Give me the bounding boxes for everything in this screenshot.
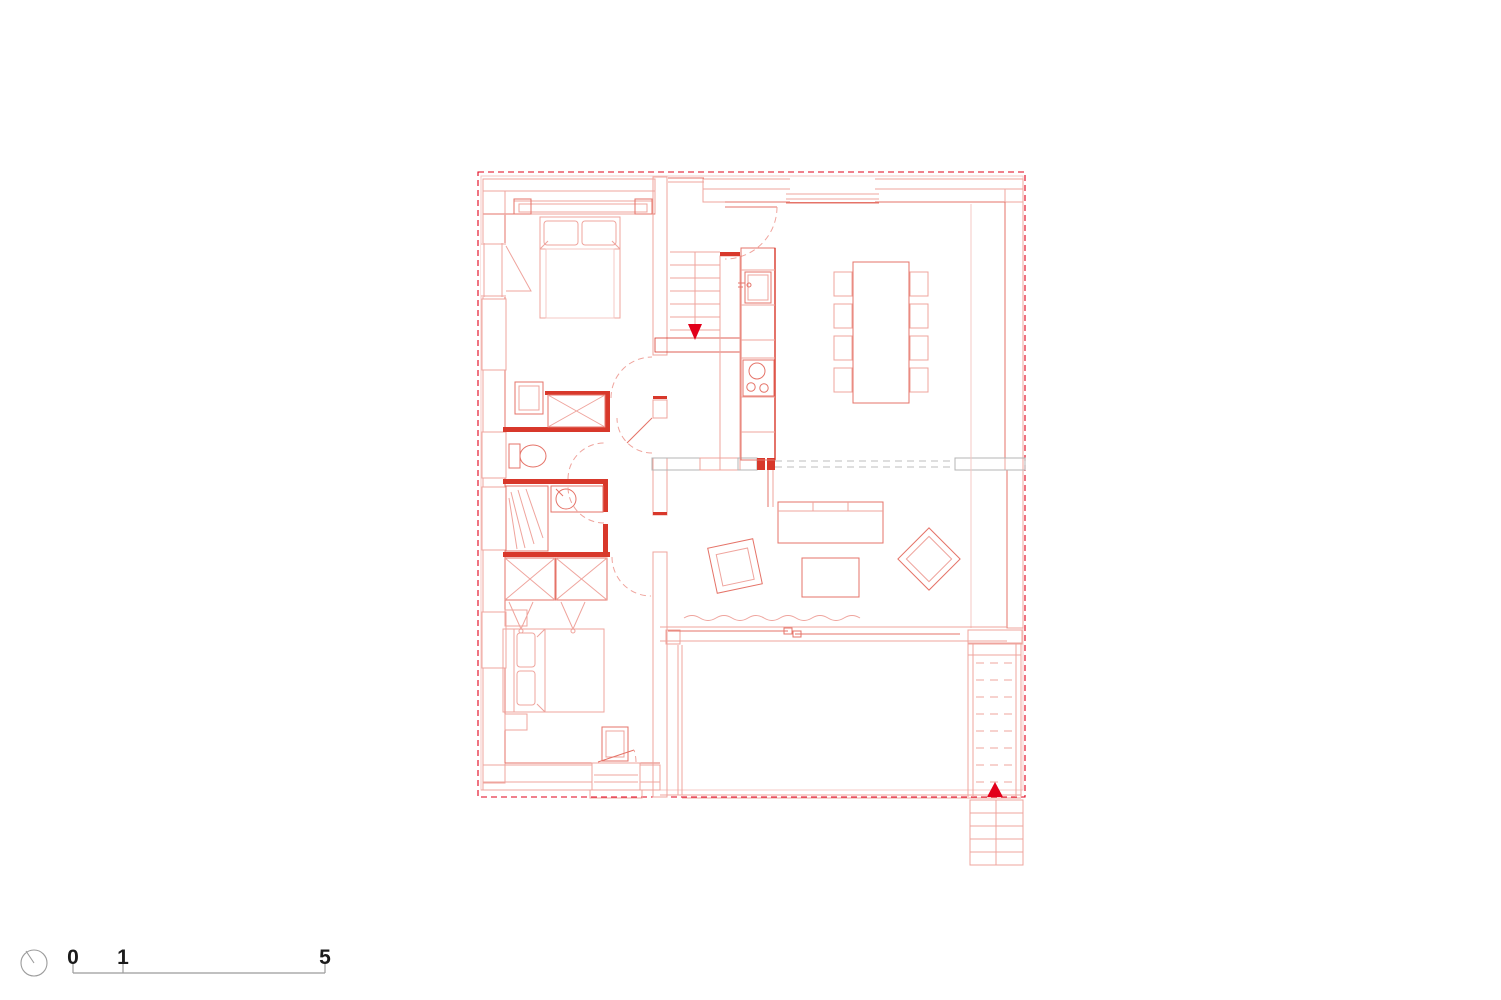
bathroom <box>506 486 603 551</box>
partition-walls <box>503 391 610 557</box>
living-room <box>684 502 960 621</box>
window-icon <box>482 612 506 668</box>
terrace <box>660 645 1021 798</box>
toilet-icon <box>509 444 546 468</box>
scale-label-5: 5 <box>319 946 331 969</box>
kitchen-window-icon <box>786 178 879 203</box>
bedroom-south <box>503 610 642 798</box>
sliding-door <box>660 627 1007 641</box>
floor-plan-page: 0 1 5 <box>0 0 1501 1000</box>
kitchen <box>738 248 775 460</box>
lower-stairs <box>970 800 1023 865</box>
armchair-icon <box>708 539 763 594</box>
built-in-closet-icon <box>514 199 652 214</box>
nightstand-icon <box>515 382 543 414</box>
floor-plan-drawing: 0 1 5 <box>0 0 1501 1000</box>
double-bed-icon <box>540 217 620 318</box>
cooktop-icon <box>743 360 774 396</box>
exterior-stairs <box>968 643 1023 865</box>
door-arc <box>611 357 652 398</box>
hall-wardrobe <box>505 558 607 633</box>
window-icon <box>482 432 506 478</box>
interior-stair <box>670 252 720 340</box>
shower-icon <box>506 486 548 551</box>
armchair-icon <box>898 528 960 590</box>
scale-bar: 0 1 5 <box>21 946 331 976</box>
curtain-icon <box>684 616 860 621</box>
dresser-icon <box>548 395 605 427</box>
scale-label-1: 1 <box>117 946 129 969</box>
window-icon <box>482 487 506 550</box>
sofa-icon <box>778 502 883 543</box>
roof-outline <box>478 172 1025 797</box>
bifold-door-icon <box>509 602 533 629</box>
dining-chairs <box>834 272 928 392</box>
nightstand-icon <box>505 714 527 730</box>
north-indicator-icon <box>21 950 47 976</box>
door-leaf <box>627 418 652 443</box>
casement-window-icon <box>481 243 531 297</box>
sink-icon <box>738 272 771 303</box>
door-arc <box>612 557 651 596</box>
kitchen-counter <box>741 248 775 460</box>
entry-door <box>725 202 777 259</box>
dining-table <box>853 262 909 403</box>
dining-set <box>834 262 928 403</box>
scale-label-0: 0 <box>67 946 79 969</box>
wc <box>509 444 546 468</box>
washbasin-icon <box>551 486 603 512</box>
coffee-table-icon <box>802 558 859 597</box>
double-bed-icon <box>503 629 604 712</box>
door-arc <box>568 443 604 479</box>
entry-glazing-icon <box>668 178 704 182</box>
exterior-walls <box>481 179 1023 790</box>
bifold-door-icon <box>561 602 585 629</box>
stair-treads-dashed <box>976 663 1013 782</box>
interior-walls <box>652 177 1025 797</box>
window-icon <box>482 299 506 370</box>
